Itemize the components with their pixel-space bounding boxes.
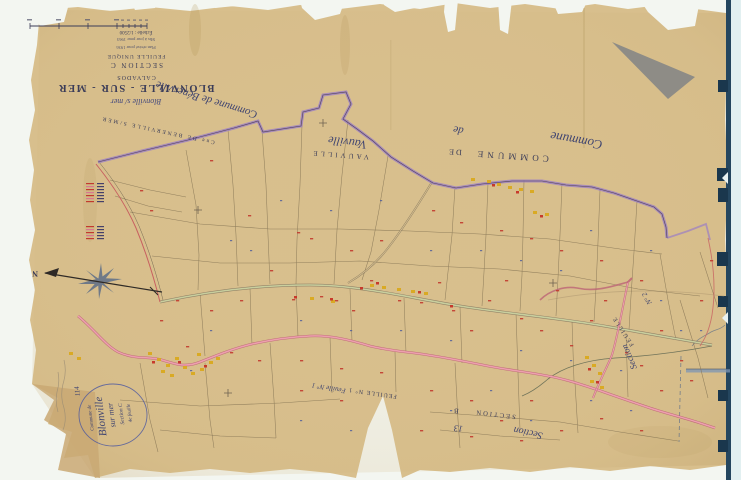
north-label: N — [32, 269, 38, 278]
cadastral-map-scan: N Cne DE BENERVILLE S/MER Commune de Bén… — [0, 0, 741, 480]
de-printed-label: DE — [447, 147, 462, 157]
de-script-label: de — [452, 123, 464, 137]
scanned-cadastral-sheet: N Cne DE BENERVILLE S/MER Commune de Bén… — [0, 0, 741, 480]
handwritten-number: 13 — [453, 423, 463, 434]
stamp-annotation: 114 — [73, 385, 82, 396]
paper-sheet — [28, 0, 728, 478]
